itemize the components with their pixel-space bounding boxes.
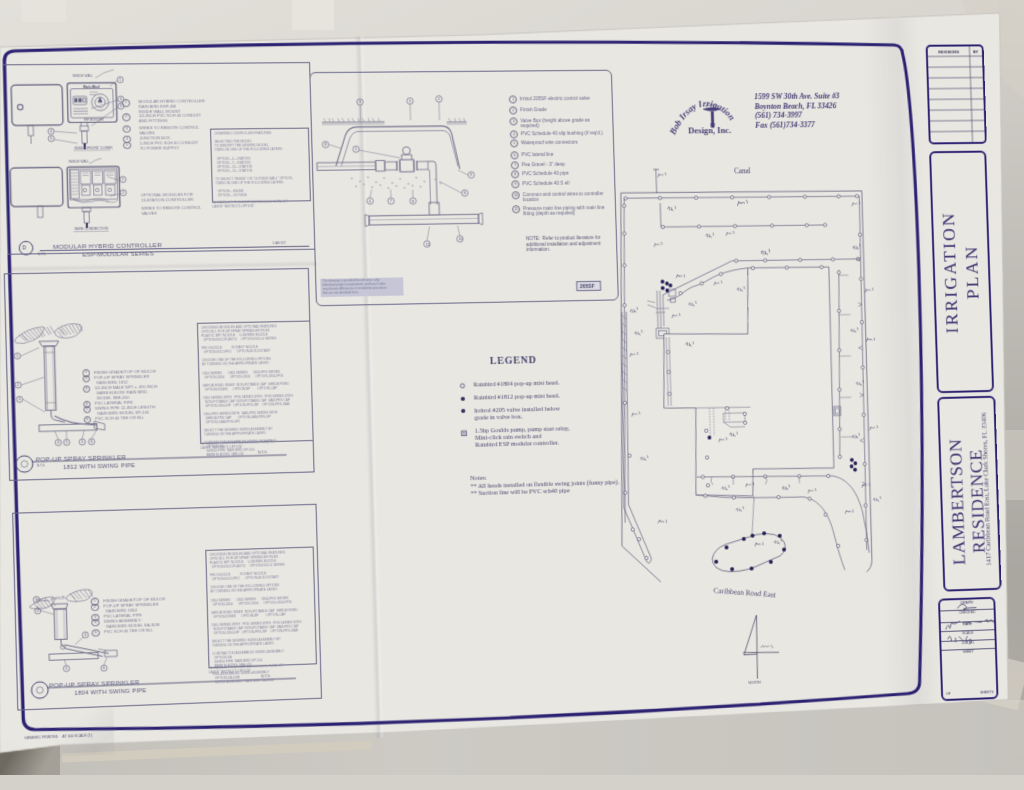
svg-text:2: 2 [37,609,39,613]
svg-text:5: 5 [65,667,67,671]
svg-text:4: 4 [369,199,371,203]
svg-text:10: 10 [459,237,463,241]
svg-text:Design, Inc.: Design, Inc. [688,126,731,136]
svg-text:4: 4 [84,633,86,637]
svg-text:2: 2 [438,97,440,101]
svg-text:11: 11 [426,242,430,246]
svg-text:1: 1 [35,598,37,602]
svg-text:FACE SHRUB: FACE SHRUB [36,595,66,603]
svg-text:Caribbean Road East: Caribbean Road East [713,586,777,599]
svg-text:8: 8 [324,143,326,147]
svg-text:8: 8 [412,199,414,203]
svg-text:NORTH: NORTH [748,681,761,685]
svg-text:5: 5 [409,100,411,104]
svg-text:205SF: 205SF [580,284,595,290]
svg-text:6: 6 [464,192,466,196]
svg-text:Canal: Canal [734,167,751,176]
svg-text:1: 1 [355,148,357,152]
svg-text:6: 6 [103,666,105,670]
svg-text:9: 9 [470,173,472,177]
svg-text:3: 3 [359,100,361,104]
svg-text:7: 7 [390,199,392,203]
